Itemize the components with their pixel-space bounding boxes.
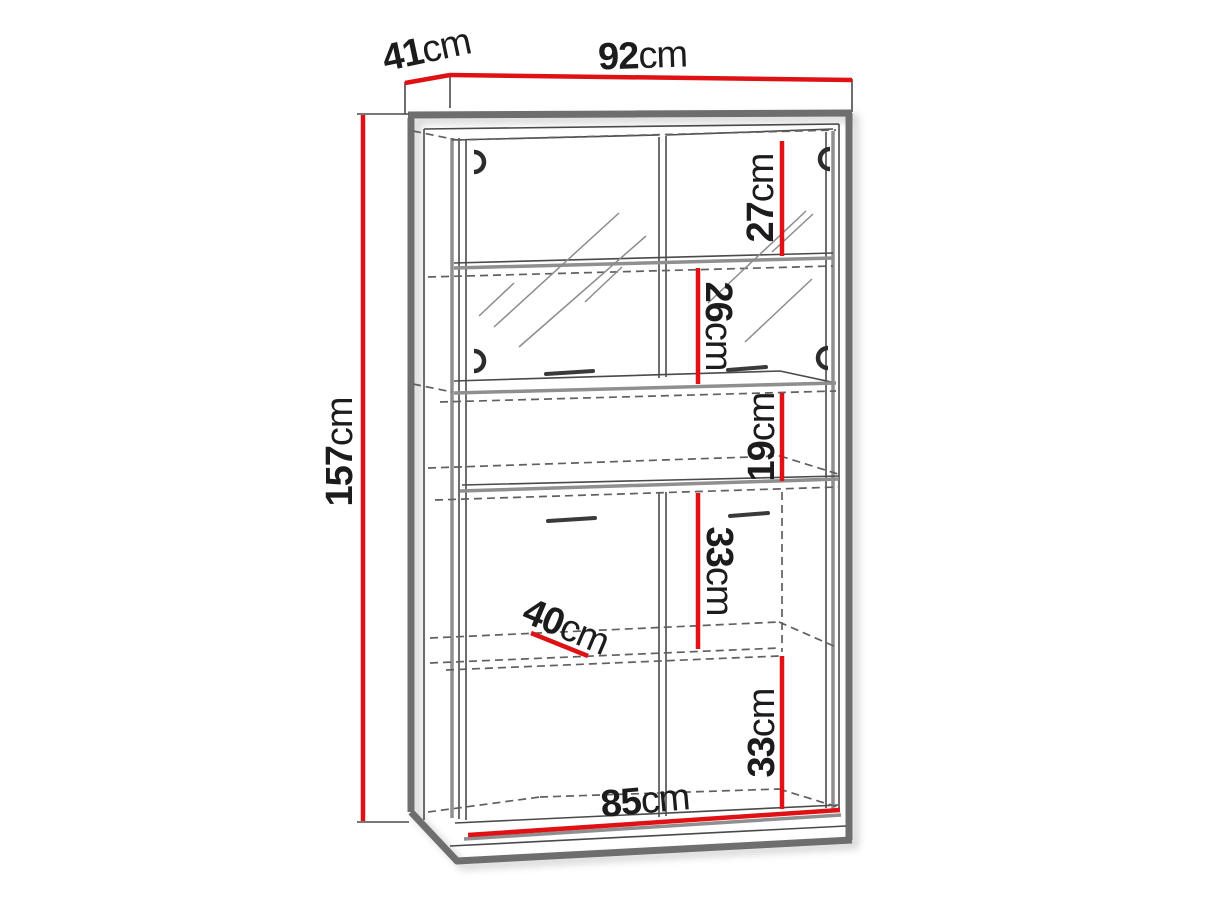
shelf-depth-label: 40cm <box>517 590 615 663</box>
depth-dimension-line <box>405 75 450 83</box>
third-compartment-label: 33cm <box>698 527 740 616</box>
niche-height-label: 19cm <box>741 393 783 482</box>
cabinet-dimension-diagram: 41cm 92cm 157cm 27cm 26cm 19cm 33cm 33cm… <box>0 0 1221 915</box>
width-dimension-label: 92cm <box>597 33 687 78</box>
depth-dimension-label: 41cm <box>379 20 475 80</box>
dimension-labels: 41cm 92cm 157cm 27cm 26cm 19cm 33cm 33cm… <box>319 20 783 825</box>
top-compartment-label: 27cm <box>740 154 782 243</box>
bottom-compartment-label: 33cm <box>741 689 783 778</box>
interior-width-label: 85cm <box>599 776 691 826</box>
height-dimension-label: 157cm <box>319 397 361 506</box>
second-compartment-label: 26cm <box>697 282 739 371</box>
